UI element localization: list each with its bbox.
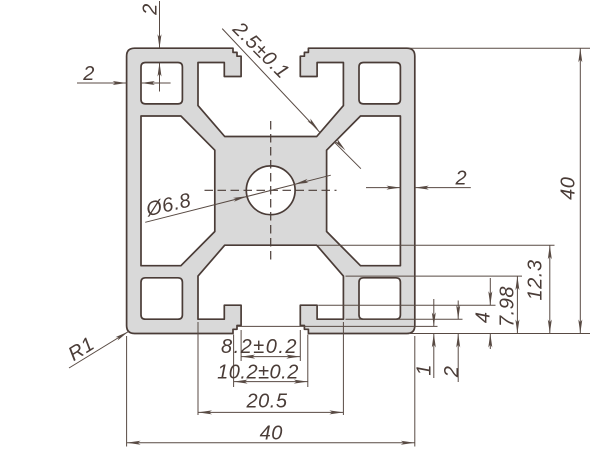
svg-text:40: 40 [557, 177, 579, 200]
svg-text:12.3: 12.3 [524, 260, 546, 301]
svg-text:8.2±0.2: 8.2±0.2 [221, 336, 298, 358]
svg-text:2: 2 [454, 168, 467, 190]
svg-text:40: 40 [260, 423, 283, 445]
svg-text:R1: R1 [64, 333, 98, 366]
svg-text:20.5: 20.5 [246, 391, 288, 413]
svg-text:10.2±0.2: 10.2±0.2 [217, 361, 299, 383]
svg-text:2: 2 [441, 366, 463, 379]
svg-text:7.98: 7.98 [497, 286, 519, 327]
svg-text:1: 1 [414, 364, 436, 376]
svg-text:2: 2 [140, 3, 162, 16]
svg-text:4: 4 [472, 311, 494, 323]
svg-text:Ø6.8: Ø6.8 [143, 189, 193, 221]
svg-text:2: 2 [82, 63, 95, 85]
